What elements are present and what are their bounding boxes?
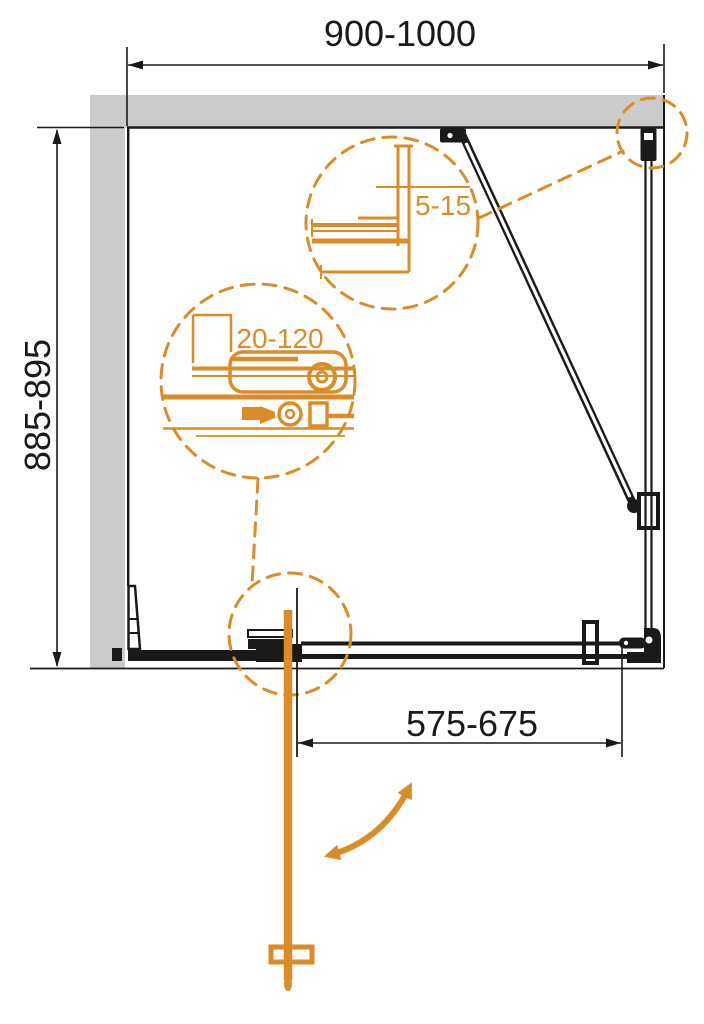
extension-adjustment-label: 20-120 <box>236 323 323 354</box>
wall-side-left <box>90 95 125 669</box>
door-panel <box>271 610 312 991</box>
wall-profile-adjustment-label: 5-15 <box>415 190 471 221</box>
wall-top <box>90 95 665 128</box>
dimension-door-opening: 575-675 <box>297 588 622 757</box>
fixed-panel-right <box>639 128 658 629</box>
panel-mid-bracket <box>639 494 658 528</box>
dimension-depth-label: 885-895 <box>17 339 58 471</box>
dimension-width-label: 900-1000 <box>324 13 476 54</box>
bottom-rail <box>128 622 661 663</box>
detail-callout-wall-profile: 5-15 <box>306 137 478 309</box>
shower-enclosure-technical-drawing: 5-15 20-120 <box>0 0 704 1024</box>
dimension-door-opening-label: 575-675 <box>406 703 538 744</box>
support-bar-diagonal <box>440 129 641 514</box>
door-swing-arrow <box>330 788 409 855</box>
detail-callout-extension-profile: 20-120 <box>161 284 355 478</box>
door-pivot-block <box>256 644 302 662</box>
